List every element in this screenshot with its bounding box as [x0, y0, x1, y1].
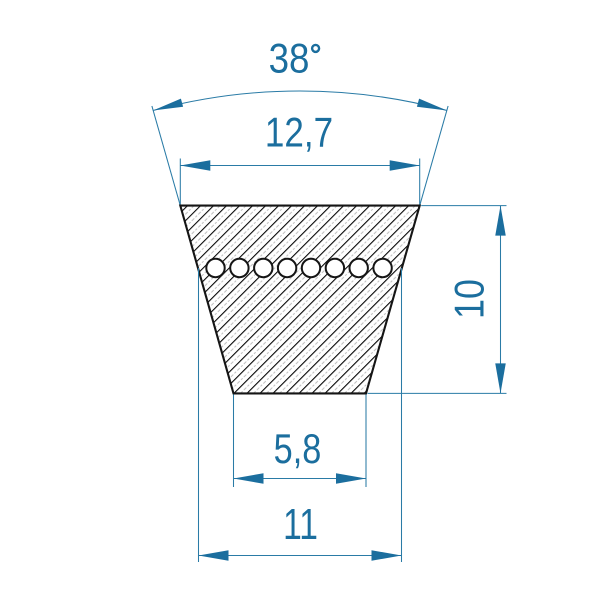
- svg-text:5,8: 5,8: [274, 426, 322, 473]
- svg-text:10: 10: [447, 279, 493, 319]
- svg-text:12,7: 12,7: [265, 110, 333, 157]
- svg-text:38: 38: [269, 35, 310, 82]
- svg-text:11: 11: [283, 501, 318, 549]
